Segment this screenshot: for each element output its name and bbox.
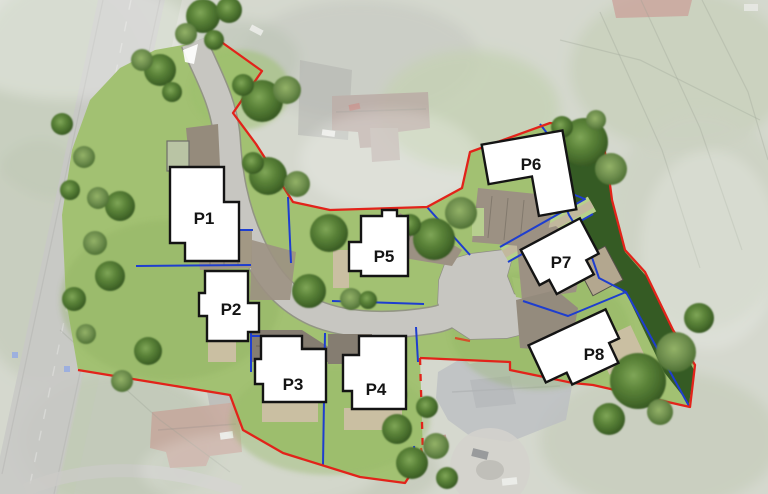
tree — [60, 180, 80, 200]
tree — [586, 110, 606, 130]
tree — [423, 433, 449, 459]
drive-patch — [186, 124, 220, 170]
tree — [51, 113, 73, 135]
tree — [273, 76, 301, 104]
p2-terrace — [208, 342, 236, 362]
plot-p3-label: P3 — [283, 375, 304, 394]
plot-p7-label: P7 — [551, 253, 572, 272]
tree — [131, 49, 153, 71]
tree — [416, 396, 438, 418]
tree — [445, 197, 477, 229]
tree — [162, 82, 182, 102]
plot-line — [136, 265, 251, 266]
tree — [310, 214, 348, 252]
plot-p4-label: P4 — [366, 380, 387, 399]
tree — [656, 332, 696, 372]
tree — [62, 287, 86, 311]
tree — [292, 274, 326, 308]
tree — [382, 414, 412, 444]
p3-terrace — [262, 402, 318, 422]
tree — [232, 74, 254, 96]
plot-p1-label: P1 — [194, 209, 215, 228]
tree — [105, 191, 135, 221]
tree — [175, 23, 197, 45]
tree — [204, 30, 224, 50]
tree — [87, 187, 109, 209]
plot-p2-label: P2 — [221, 300, 242, 319]
tree — [134, 337, 162, 365]
tree — [284, 171, 310, 197]
tree — [647, 399, 673, 425]
tree — [73, 146, 95, 168]
plot-p5-label: P5 — [374, 247, 395, 266]
tree — [83, 231, 107, 255]
tree — [359, 291, 377, 309]
tree — [76, 324, 96, 344]
plot-p8-label: P8 — [584, 345, 605, 364]
tree — [111, 370, 133, 392]
tree — [684, 303, 714, 333]
tree — [595, 153, 627, 185]
tree — [396, 447, 428, 479]
tree — [95, 261, 125, 291]
site-plan-canvas: P1 P2 P3 P4 P5 P6 P7 P8 — [0, 0, 768, 494]
tree — [593, 403, 625, 435]
tree — [242, 152, 264, 174]
plot-p6-label: P6 — [521, 155, 542, 174]
tree — [340, 288, 362, 310]
site-plan-image: P1 P2 P3 P4 P5 P6 P7 P8 — [0, 0, 768, 494]
p5-terrace — [333, 250, 349, 288]
tree — [436, 467, 458, 489]
